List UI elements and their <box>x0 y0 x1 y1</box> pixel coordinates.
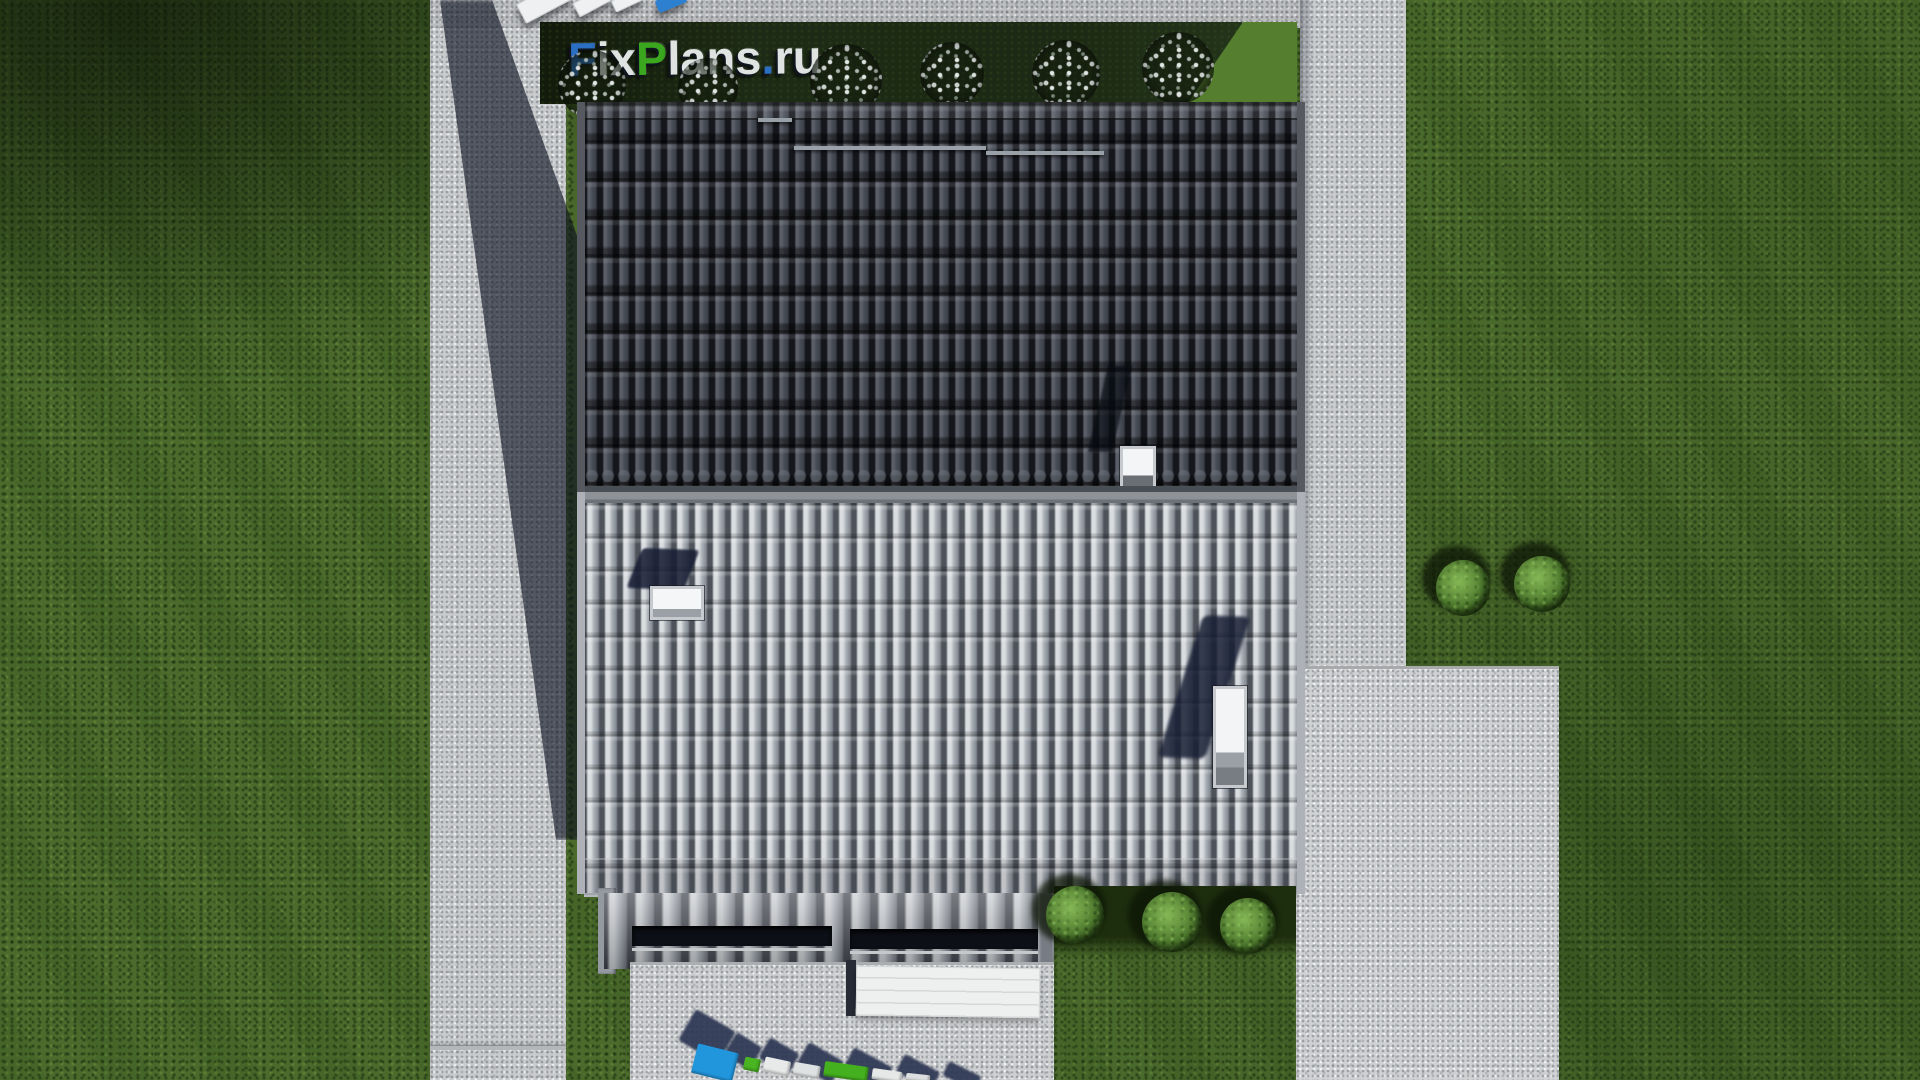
right-patio <box>1296 666 1559 1080</box>
clerestory-window <box>632 926 832 946</box>
lawn-shrub <box>1506 550 1574 616</box>
flowering-bush <box>1032 40 1100 108</box>
flowering-bush <box>920 42 984 106</box>
right-walkway <box>1300 0 1406 676</box>
walkway-curb-line <box>430 1046 566 1050</box>
gutter-right-lower <box>1297 492 1305 894</box>
clerestory-window <box>850 929 1040 949</box>
awning-gap-shadow <box>846 960 856 1016</box>
shrub-shadow <box>1422 546 1490 610</box>
roof-ridge <box>584 102 1297 120</box>
downspout <box>1038 893 1052 971</box>
shrub-shadow <box>1500 542 1570 606</box>
roof-window <box>650 586 704 620</box>
dark-roof-slope <box>584 102 1297 492</box>
gutter-left-upper <box>577 102 585 492</box>
snow-guard-bar <box>758 118 792 122</box>
lawn-shrub <box>1428 554 1494 620</box>
watermark-segment: . <box>761 31 775 84</box>
aerial-house-render: FixPlans.ru <box>0 0 1920 1080</box>
garage-awning <box>856 966 1041 1019</box>
window-sill <box>632 948 832 951</box>
gutter-right-upper <box>1297 102 1305 492</box>
watermark-segment: P <box>636 32 668 85</box>
shrub-foliage <box>1436 560 1490 616</box>
roof-transition-band <box>584 486 1297 504</box>
flowering-bush <box>1142 32 1214 104</box>
snow-guard-bar <box>794 146 986 150</box>
snow-guard-bar <box>986 151 1104 155</box>
shrub-foliage <box>1514 556 1570 612</box>
tall-roof-window <box>1213 686 1247 788</box>
bottom-garden-bed <box>1054 886 1296 958</box>
gutter-left-lower <box>577 492 585 894</box>
window-sill <box>850 951 1040 954</box>
